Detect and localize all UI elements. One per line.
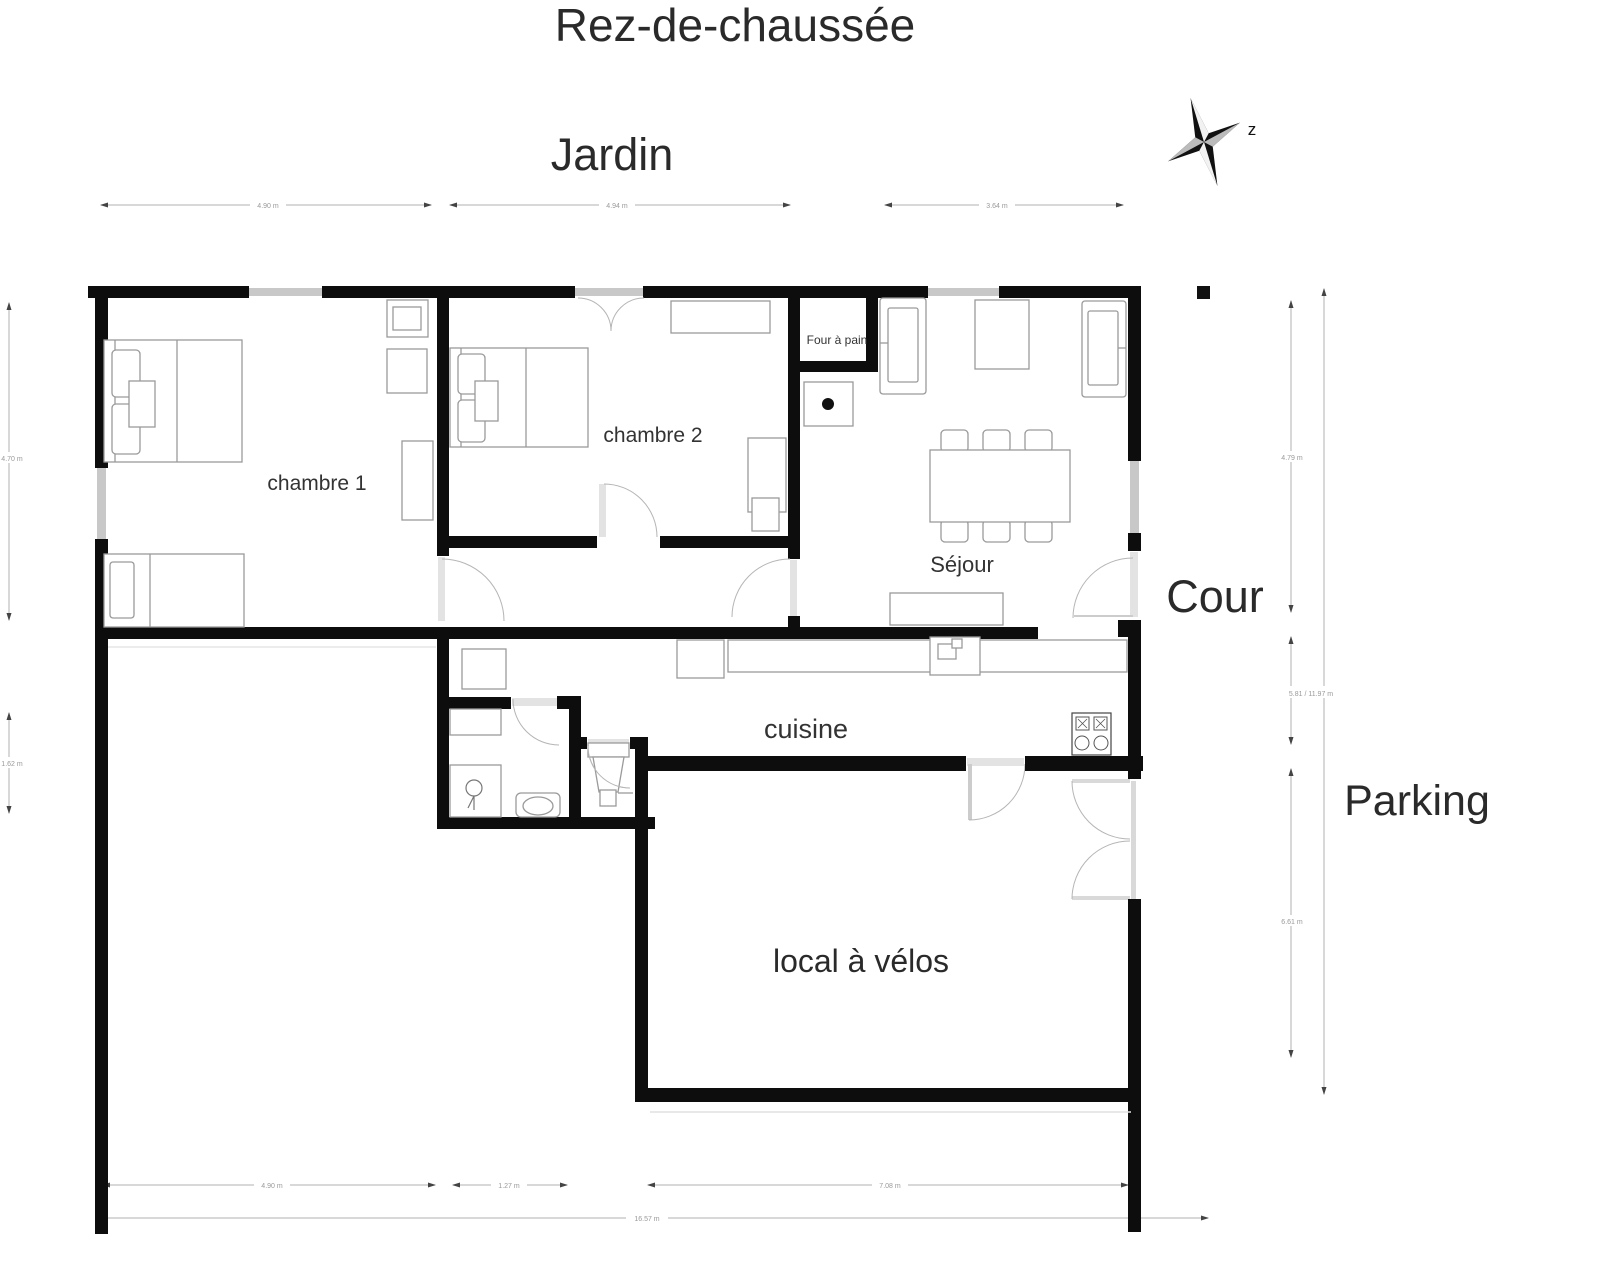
svg-text:z: z (1248, 120, 1257, 139)
svg-text:4.90 m: 4.90 m (257, 203, 279, 210)
svg-text:Parking: Parking (1344, 777, 1490, 825)
svg-text:4.79 m: 4.79 m (1281, 455, 1303, 462)
svg-text:16.57 m: 16.57 m (634, 1216, 659, 1223)
svg-text:chambre 1: chambre 1 (267, 472, 366, 495)
svg-text:Jardin: Jardin (551, 129, 674, 180)
svg-text:Rez-de-chaussée: Rez-de-chaussée (555, 0, 916, 51)
svg-text:1.62 m: 1.62 m (1, 761, 23, 768)
svg-text:Cour: Cour (1166, 571, 1264, 622)
svg-text:cuisine: cuisine (764, 714, 848, 744)
svg-text:3.64 m: 3.64 m (986, 203, 1008, 210)
svg-text:7.08 m: 7.08 m (879, 1183, 901, 1190)
svg-text:1.27 m: 1.27 m (498, 1183, 520, 1190)
svg-text:4.90 m: 4.90 m (261, 1183, 283, 1190)
svg-text:Séjour: Séjour (930, 552, 994, 577)
svg-text:5.81 / 11.97 m: 5.81 / 11.97 m (1289, 691, 1333, 698)
svg-text:Four à pain: Four à pain (807, 333, 868, 347)
svg-text:chambre 2: chambre 2 (603, 424, 702, 447)
svg-text:6.61 m: 6.61 m (1281, 919, 1303, 926)
svg-text:local à vélos: local à vélos (773, 943, 949, 979)
svg-text:4.70 m: 4.70 m (1, 456, 23, 463)
svg-text:4.94 m: 4.94 m (606, 203, 628, 210)
